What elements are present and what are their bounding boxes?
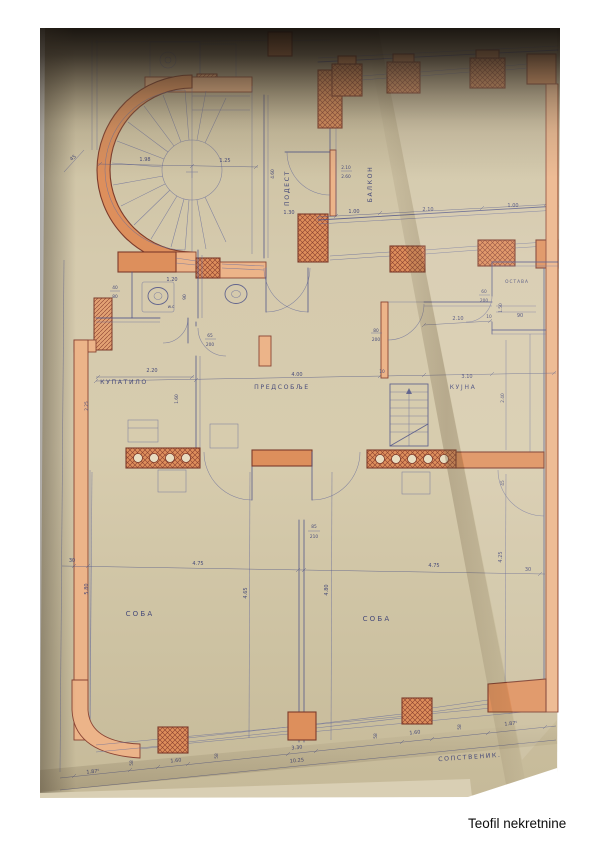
top-shadow bbox=[40, 28, 560, 178]
dim-wall-10: 10 bbox=[379, 369, 385, 375]
dim-b-58c: 58 bbox=[373, 733, 379, 739]
dim-wc-40: 40 bbox=[112, 285, 118, 291]
dim-wc-80: 80 bbox=[112, 294, 118, 300]
dim-wc-90: 90 bbox=[182, 294, 188, 300]
room-label-kupatilo: КУПАТИЛО bbox=[100, 379, 148, 386]
dim-bathdoor-65: 65 bbox=[207, 333, 213, 339]
dim-mid-475l: 4.75 bbox=[192, 561, 203, 567]
dim-bath-160: 1.60 bbox=[174, 394, 180, 404]
dim-v-480: 4.80 bbox=[324, 584, 330, 595]
room-label-soba-left: СОБА bbox=[126, 610, 155, 618]
dim-wc-120: 1.20 bbox=[166, 277, 177, 283]
dim-mid-475r: 4.75 bbox=[428, 563, 439, 569]
dim-row1-130: 1.30 bbox=[283, 210, 294, 216]
room-label-soba-right: СОБА bbox=[363, 615, 392, 623]
watermark-text: Teofil nekretnine bbox=[468, 816, 596, 831]
left-shadow bbox=[40, 28, 76, 793]
floor-plan-photo: 1.98 1.25 45 4.60 ПОДЕСТ БАЛКОН 2.10 2.6… bbox=[0, 0, 600, 847]
dim-b-58d: 58 bbox=[457, 724, 463, 730]
screenshot: 1.98 1.25 45 4.60 ПОДЕСТ БАЛКОН 2.10 2.6… bbox=[0, 0, 600, 847]
room-label-wc: w.c bbox=[168, 305, 175, 310]
dim-bathdoor-200: 200 bbox=[206, 342, 214, 348]
dim-door-85: 85 bbox=[311, 524, 317, 530]
dim-v-465: 4.65 bbox=[243, 587, 249, 598]
dim-bath-225: 2.25 bbox=[84, 401, 90, 411]
dim-pred-400: 4.00 bbox=[291, 372, 302, 378]
dim-door-210: 210 bbox=[310, 534, 318, 540]
dim-row1-100l: 1.00 bbox=[348, 209, 359, 215]
dim-kujdoor-200: 200 bbox=[372, 337, 380, 343]
dim-v-580: 5.80 bbox=[84, 583, 90, 594]
dim-bath-220: 2.20 bbox=[146, 368, 157, 374]
room-label-predsoblje: ПРЕДСОБЉЕ bbox=[254, 384, 310, 391]
dim-kujdoor-80: 80 bbox=[373, 328, 379, 334]
